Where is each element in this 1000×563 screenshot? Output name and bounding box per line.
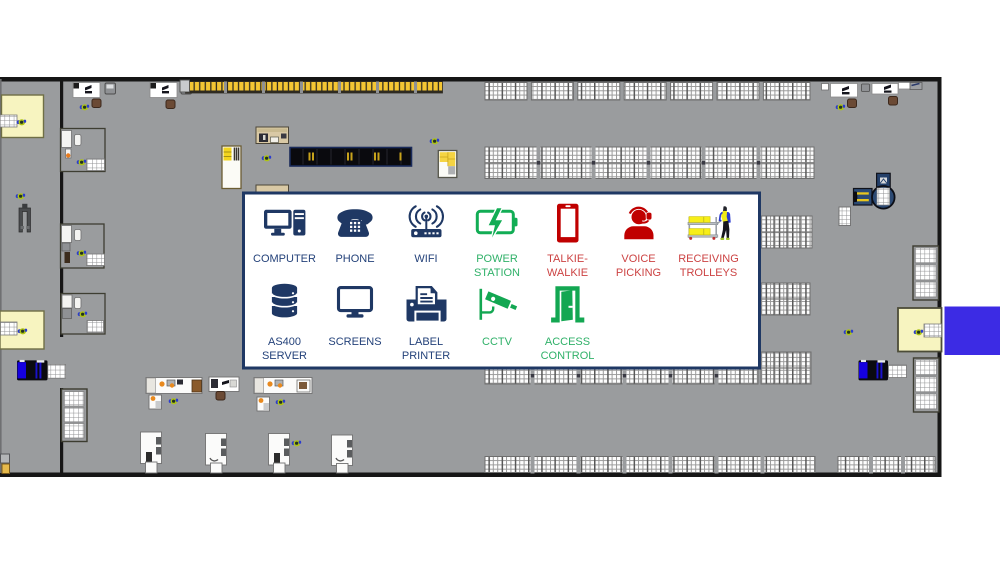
svg-text:VOICE: VOICE xyxy=(621,253,655,265)
svg-text:COMPUTER: COMPUTER xyxy=(253,253,316,265)
svg-text:TROLLEYS: TROLLEYS xyxy=(680,267,737,279)
svg-text:TALKIE-: TALKIE- xyxy=(547,253,588,265)
svg-text:CONTROL: CONTROL xyxy=(541,350,595,362)
svg-text:CCTV: CCTV xyxy=(482,336,513,348)
svg-text:PRINTER: PRINTER xyxy=(402,350,450,362)
svg-text:PICKING: PICKING xyxy=(616,267,661,279)
svg-text:SERVER: SERVER xyxy=(262,350,307,362)
svg-text:AS400: AS400 xyxy=(268,336,301,348)
svg-text:STATION: STATION xyxy=(474,267,520,279)
svg-text:PHONE: PHONE xyxy=(335,253,374,265)
svg-text:POWER: POWER xyxy=(476,253,518,265)
svg-text:ACCESS: ACCESS xyxy=(545,336,590,348)
svg-text:WIFI: WIFI xyxy=(414,253,437,265)
svg-text:SCREENS: SCREENS xyxy=(328,336,381,348)
svg-text:WALKIE: WALKIE xyxy=(547,267,588,279)
svg-text:LABEL: LABEL xyxy=(409,336,443,348)
svg-text:RECEIVING: RECEIVING xyxy=(678,253,739,265)
